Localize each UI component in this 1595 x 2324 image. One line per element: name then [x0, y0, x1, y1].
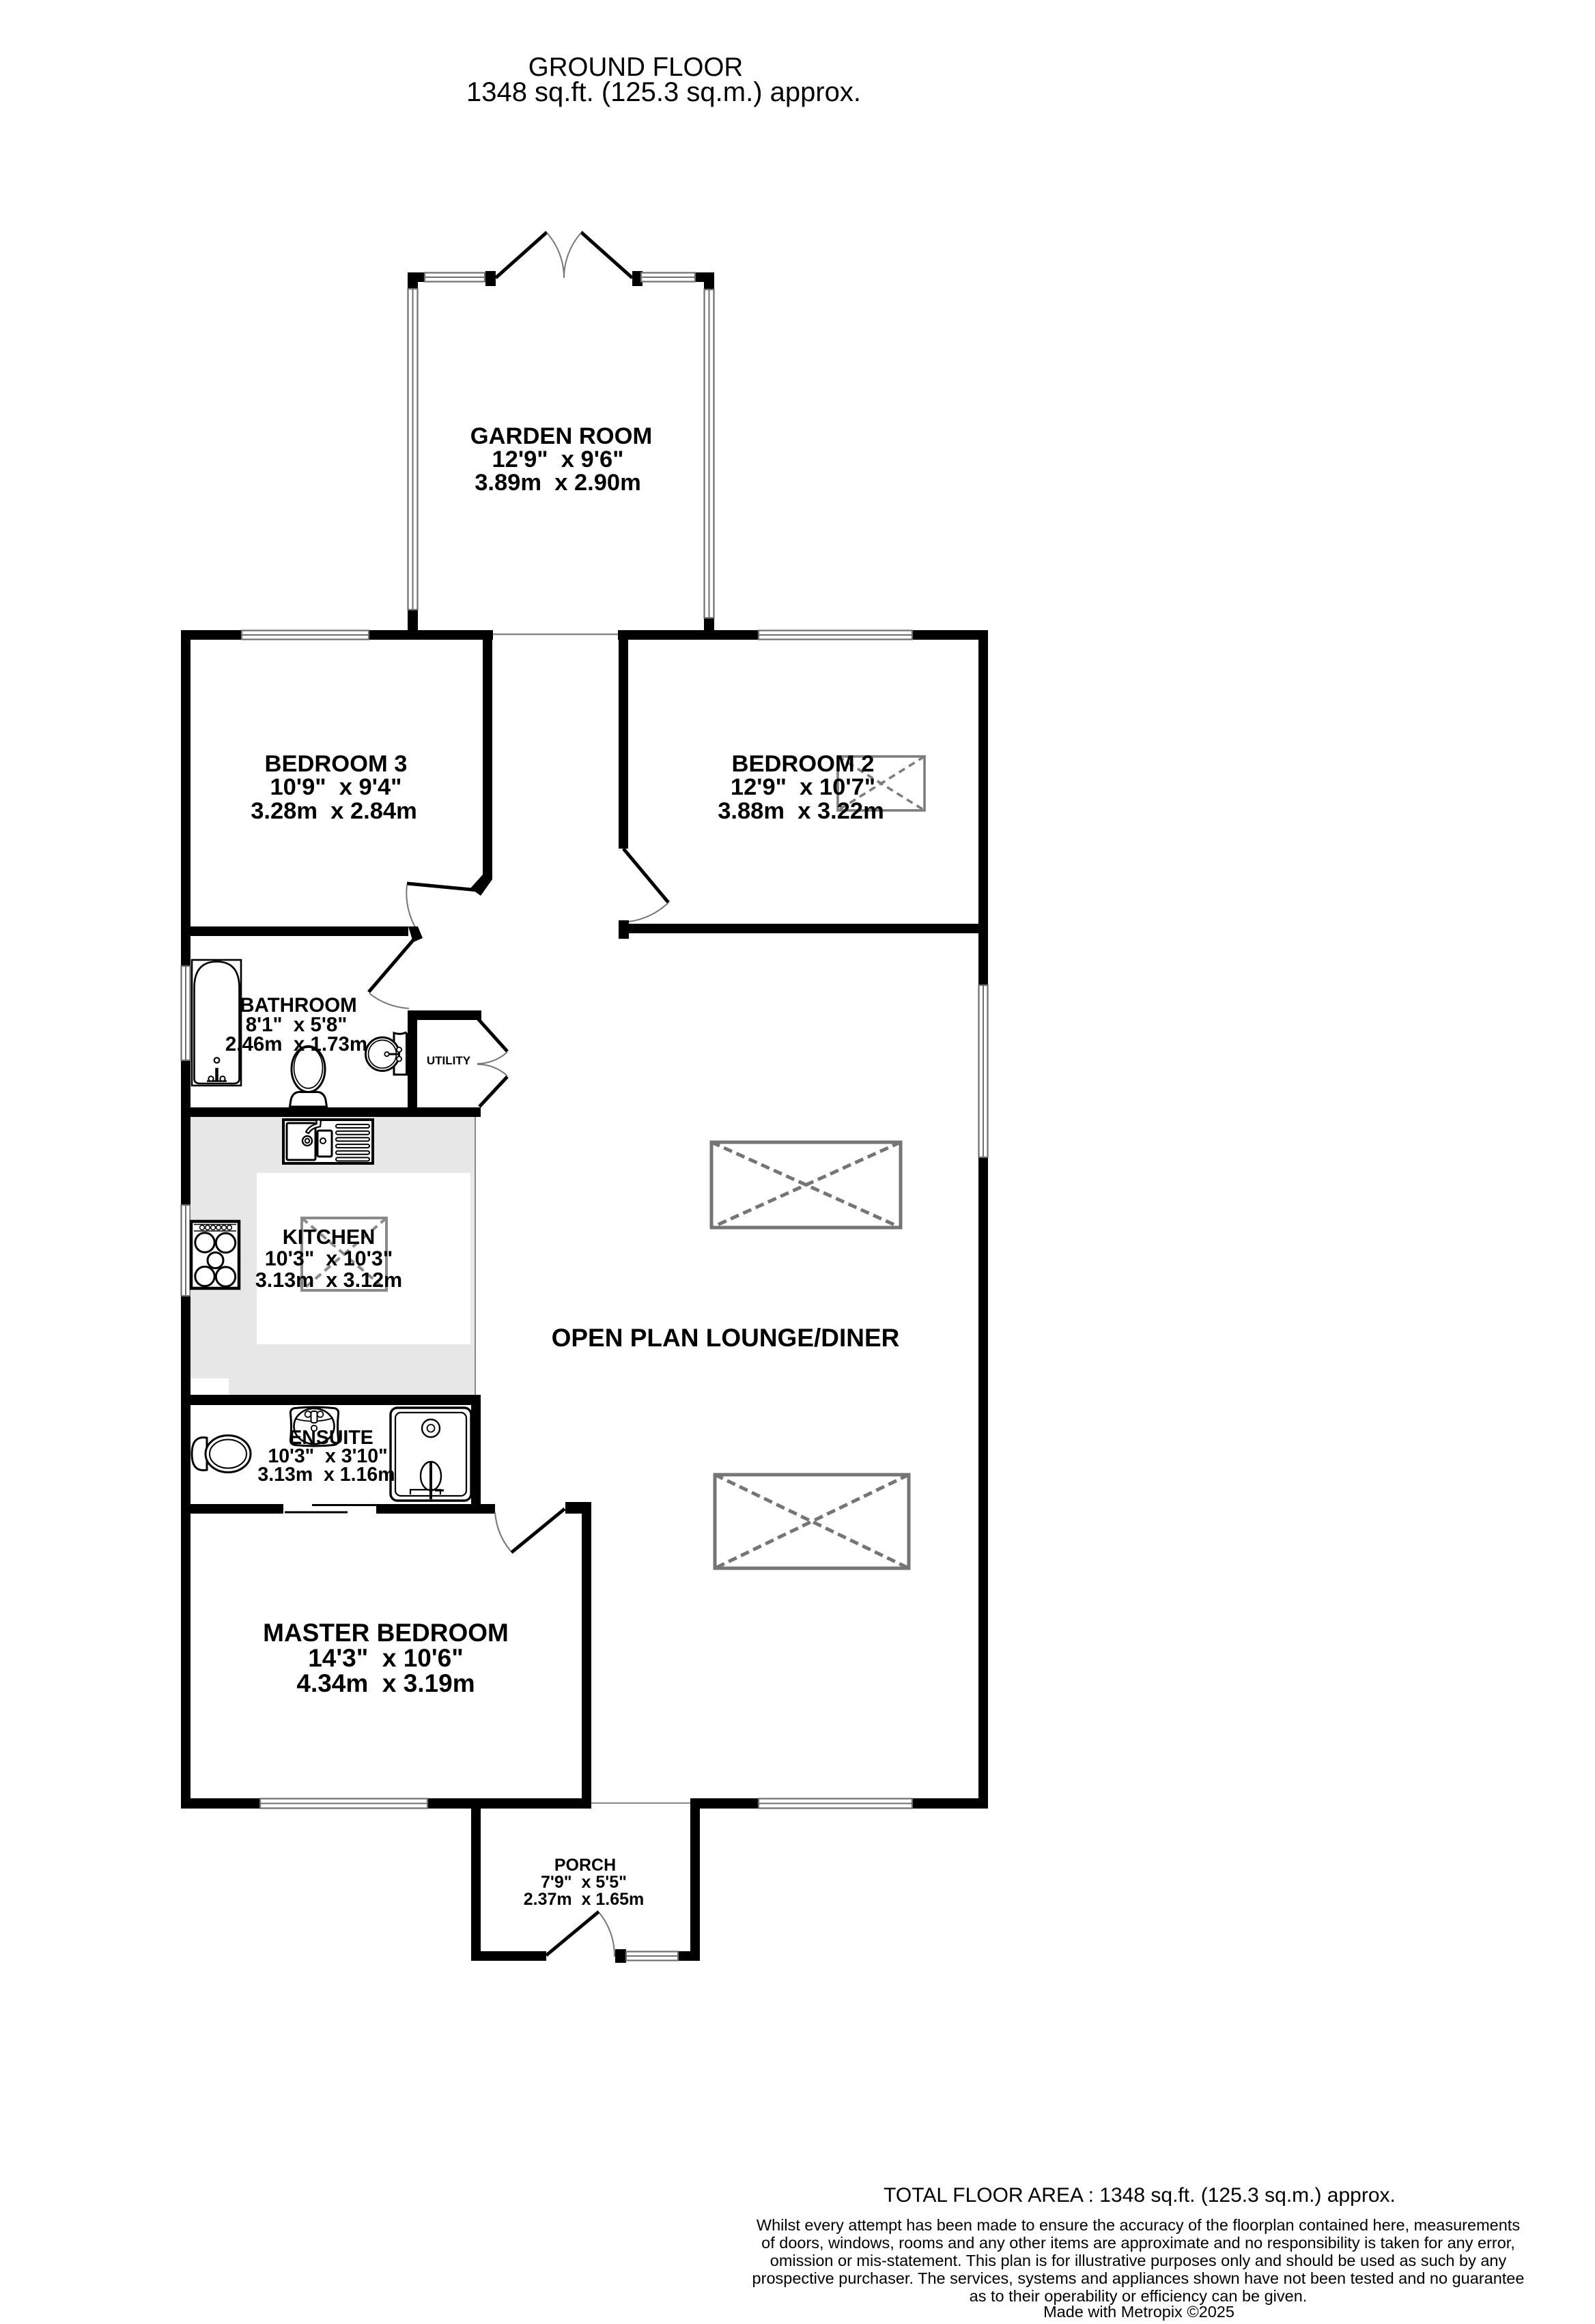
svg-text:2.46m x 1.73m: 2.46m x 1.73m — [225, 1033, 367, 1055]
svg-text:4.34m x 3.19m: 4.34m x 3.19m — [296, 1669, 475, 1697]
svg-text:BEDROOM 2: BEDROOM 2 — [732, 751, 875, 777]
svg-text:10'9" x 9'4": 10'9" x 9'4" — [270, 774, 401, 800]
svg-text:prospective purchaser. The ser: prospective purchaser. The services, sys… — [752, 2269, 1525, 2287]
svg-text:PORCH: PORCH — [554, 1856, 616, 1875]
svg-text:1348 sq.ft. (125.3 sq.m.) appr: 1348 sq.ft. (125.3 sq.m.) approx. — [466, 77, 861, 107]
svg-text:KITCHEN: KITCHEN — [283, 1225, 376, 1249]
svg-text:BEDROOM 3: BEDROOM 3 — [265, 751, 408, 777]
svg-text:12'9" x 9'6": 12'9" x 9'6" — [492, 447, 623, 472]
svg-text:3.88m x 3.22m: 3.88m x 3.22m — [718, 798, 884, 824]
svg-text:omission or mis-statement. Thi: omission or mis-statement. This plan is … — [770, 2252, 1507, 2269]
svg-text:10'3" x 10'3": 10'3" x 10'3" — [265, 1247, 393, 1271]
svg-text:12'9" x 10'7": 12'9" x 10'7" — [731, 774, 875, 800]
svg-text:3.28m x 2.84m: 3.28m x 2.84m — [251, 798, 417, 824]
svg-text:Made with Metropix ©2025: Made with Metropix ©2025 — [1043, 2303, 1234, 2321]
svg-text:14'3" x 10'6": 14'3" x 10'6" — [308, 1644, 464, 1672]
svg-text:3.89m x 2.90m: 3.89m x 2.90m — [475, 470, 641, 496]
svg-text:UTILITY: UTILITY — [427, 1054, 471, 1067]
svg-text:of doors, windows, rooms and a: of doors, windows, rooms and any other i… — [761, 2234, 1515, 2252]
svg-text:3.13m x 3.12m: 3.13m x 3.12m — [255, 1269, 402, 1292]
svg-text:TOTAL FLOOR AREA : 1348 sq.ft.: TOTAL FLOOR AREA : 1348 sq.ft. (125.3 sq… — [884, 2184, 1396, 2207]
svg-text:MASTER BEDROOM: MASTER BEDROOM — [263, 1619, 509, 1647]
svg-text:GARDEN ROOM: GARDEN ROOM — [470, 423, 652, 449]
svg-text:7'9" x 5'5": 7'9" x 5'5" — [541, 1873, 627, 1892]
svg-text:2.37m x 1.65m: 2.37m x 1.65m — [524, 1890, 645, 1909]
svg-text:Whilst every attempt has been: Whilst every attempt has been made to en… — [757, 2216, 1520, 2234]
svg-text:OPEN PLAN LOUNGE/DINER: OPEN PLAN LOUNGE/DINER — [552, 1324, 900, 1352]
svg-text:3.13m x 1.16m: 3.13m x 1.16m — [257, 1464, 395, 1486]
